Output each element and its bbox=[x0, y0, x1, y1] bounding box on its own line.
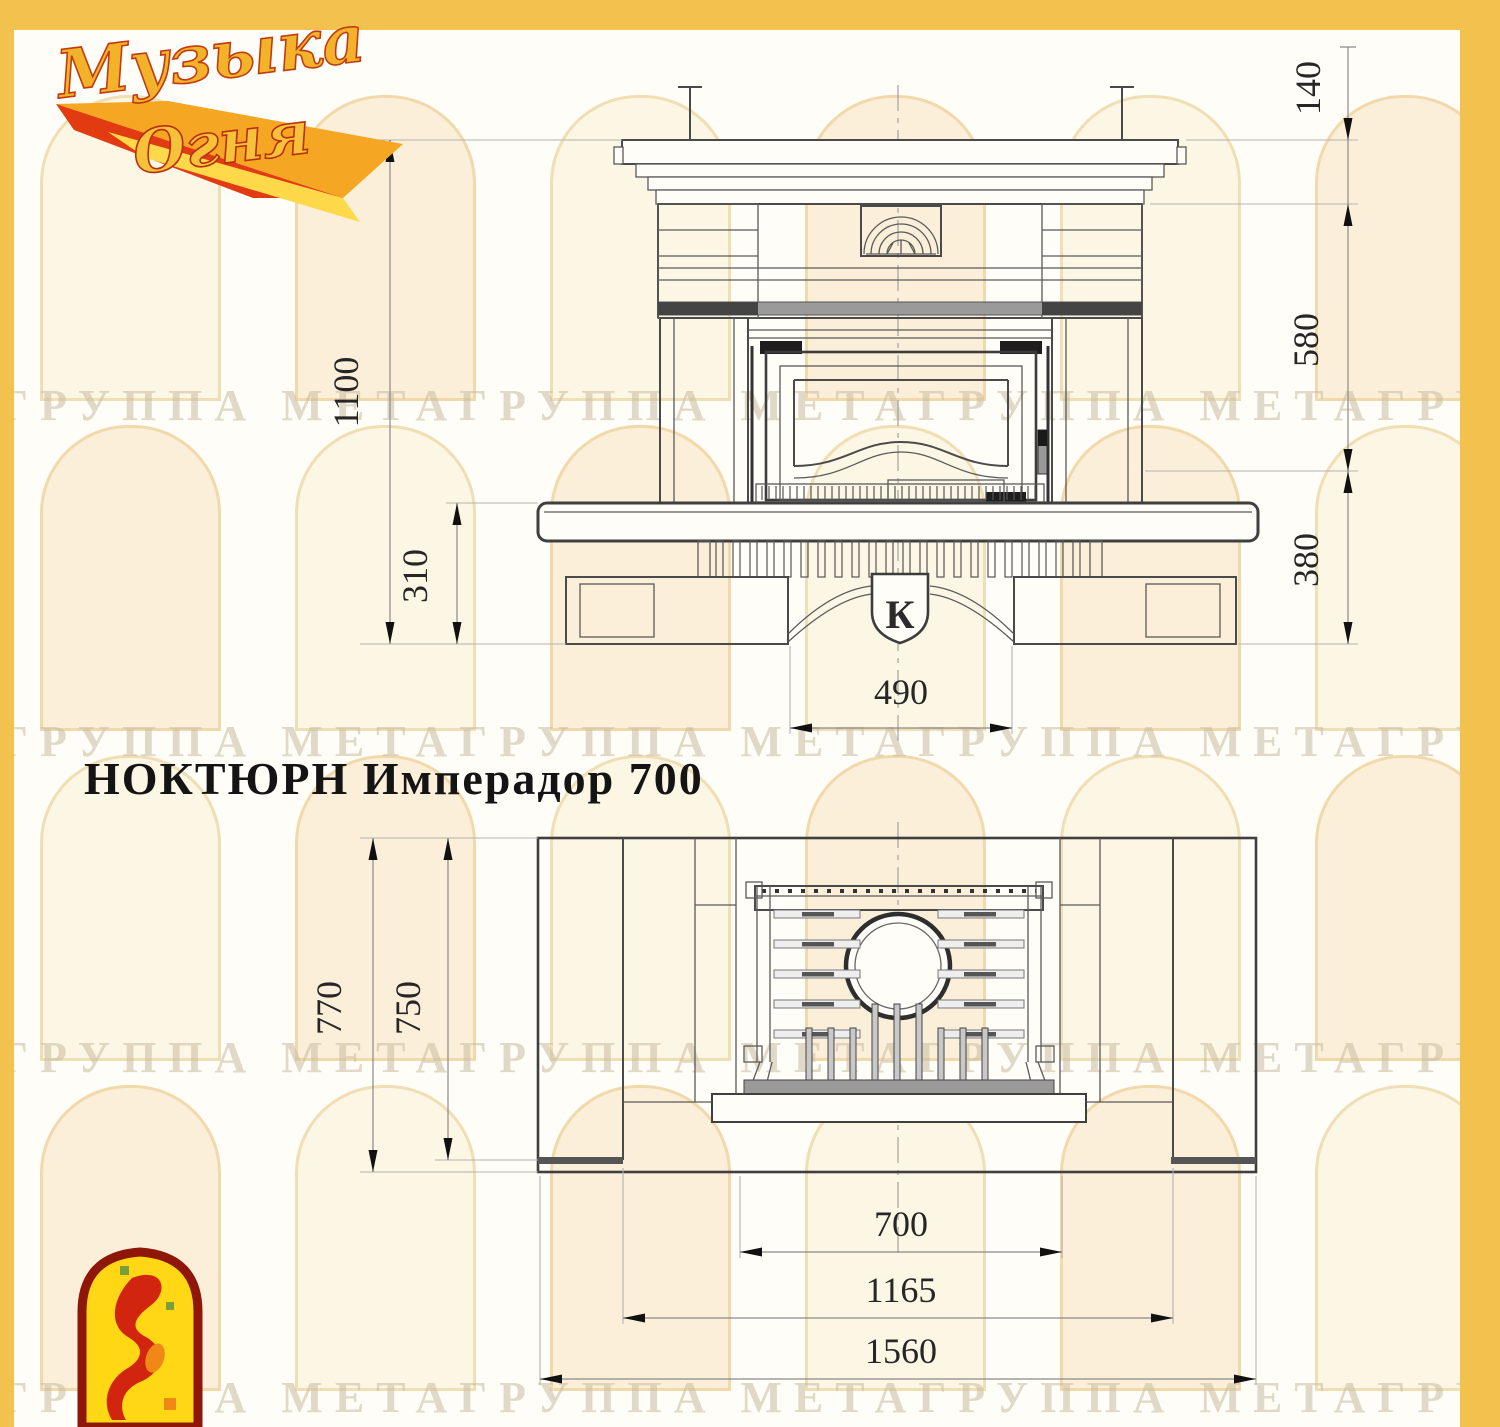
base: К bbox=[566, 574, 1236, 644]
dim-label-310: 310 bbox=[395, 549, 435, 603]
page: ГРУППА МЕТАГРУППА МЕТАГРУППА МЕТАГРУППА … bbox=[0, 0, 1500, 1427]
dim-label-580: 580 bbox=[1286, 313, 1326, 367]
dim-total-width: 1560 bbox=[540, 1331, 1256, 1379]
brand-logo: Музыка Огня bbox=[8, 6, 428, 251]
flue-collar-circle bbox=[846, 914, 950, 1018]
frieze bbox=[658, 204, 1142, 318]
plan-firebox-insert bbox=[712, 882, 1086, 1122]
flame-arch-icon bbox=[70, 1240, 210, 1427]
dim-firebox-width: 700 bbox=[740, 1204, 1062, 1252]
logo-word-1: Музыка bbox=[50, 6, 368, 114]
dim-arrow bbox=[369, 1150, 378, 1172]
dim-arrow bbox=[386, 622, 395, 644]
dim-arrow bbox=[369, 838, 378, 860]
dim-arrow bbox=[990, 724, 1012, 733]
dim-label-700: 700 bbox=[874, 1204, 928, 1244]
dim-arrow bbox=[1040, 1248, 1062, 1257]
frame-right bbox=[1460, 0, 1500, 1427]
dim-label-1560: 1560 bbox=[865, 1331, 937, 1371]
dim-label-380: 380 bbox=[1286, 533, 1326, 587]
dim-hearth-height: 310 bbox=[395, 503, 457, 644]
dim-right-chain: 140 580 380 bbox=[1286, 47, 1356, 644]
grate-bars bbox=[806, 1004, 988, 1084]
dim-arrow bbox=[623, 1314, 645, 1323]
dim-label-1165: 1165 bbox=[866, 1270, 937, 1310]
wall-front-left bbox=[538, 1157, 623, 1164]
dim-arrow bbox=[1344, 118, 1353, 140]
dim-depth-inner: 750 bbox=[388, 838, 448, 1160]
dim-arrow bbox=[453, 503, 462, 525]
dim-arrow bbox=[453, 622, 462, 644]
dim-arrow bbox=[444, 838, 453, 860]
flue-lines bbox=[678, 86, 1134, 140]
dim-label-770: 770 bbox=[309, 981, 349, 1035]
dim-label-750: 750 bbox=[388, 981, 428, 1035]
dim-arrow bbox=[1344, 471, 1353, 493]
hearth-bench bbox=[538, 503, 1258, 541]
baluster-row bbox=[698, 541, 1102, 577]
fan-ornament bbox=[861, 206, 941, 256]
dim-arrow bbox=[1151, 1314, 1173, 1323]
dim-label-140: 140 bbox=[1288, 61, 1328, 115]
dim-depth-outer: 770 bbox=[309, 838, 373, 1172]
dim-arrow bbox=[790, 724, 812, 733]
dim-pedestal-width: 490 bbox=[790, 646, 1012, 734]
dim-label-1100: 1100 bbox=[326, 357, 366, 428]
emblem-letter: К bbox=[885, 592, 914, 637]
insert-front-band bbox=[744, 1080, 1054, 1094]
dim-label-490: 490 bbox=[874, 672, 928, 712]
dim-arrow bbox=[1344, 622, 1353, 644]
dim-arrow bbox=[444, 1138, 453, 1160]
wall-front-right bbox=[1171, 1157, 1256, 1164]
page-title: НОКТЮРН Имперадор 700 bbox=[84, 752, 704, 805]
dim-arrow bbox=[740, 1248, 762, 1257]
capital-band-right bbox=[1042, 302, 1142, 315]
dim-arrow bbox=[1344, 449, 1353, 471]
front-elevation: К 490 1100 310 140 bbox=[326, 47, 1358, 748]
dim-arrow bbox=[1234, 1375, 1256, 1384]
lintel bbox=[748, 330, 1052, 354]
capital-band-left bbox=[658, 302, 758, 315]
cornice bbox=[614, 140, 1186, 204]
portal-pillars bbox=[660, 318, 1142, 503]
plan-view: 770 750 700 1165 1560 bbox=[309, 822, 1256, 1385]
dim-body-width: 1165 bbox=[623, 1270, 1173, 1318]
insert-front-plate bbox=[712, 1094, 1086, 1122]
dim-arrow bbox=[1344, 204, 1353, 226]
door-glass-wave bbox=[794, 442, 1008, 466]
dim-arrow bbox=[540, 1375, 562, 1384]
